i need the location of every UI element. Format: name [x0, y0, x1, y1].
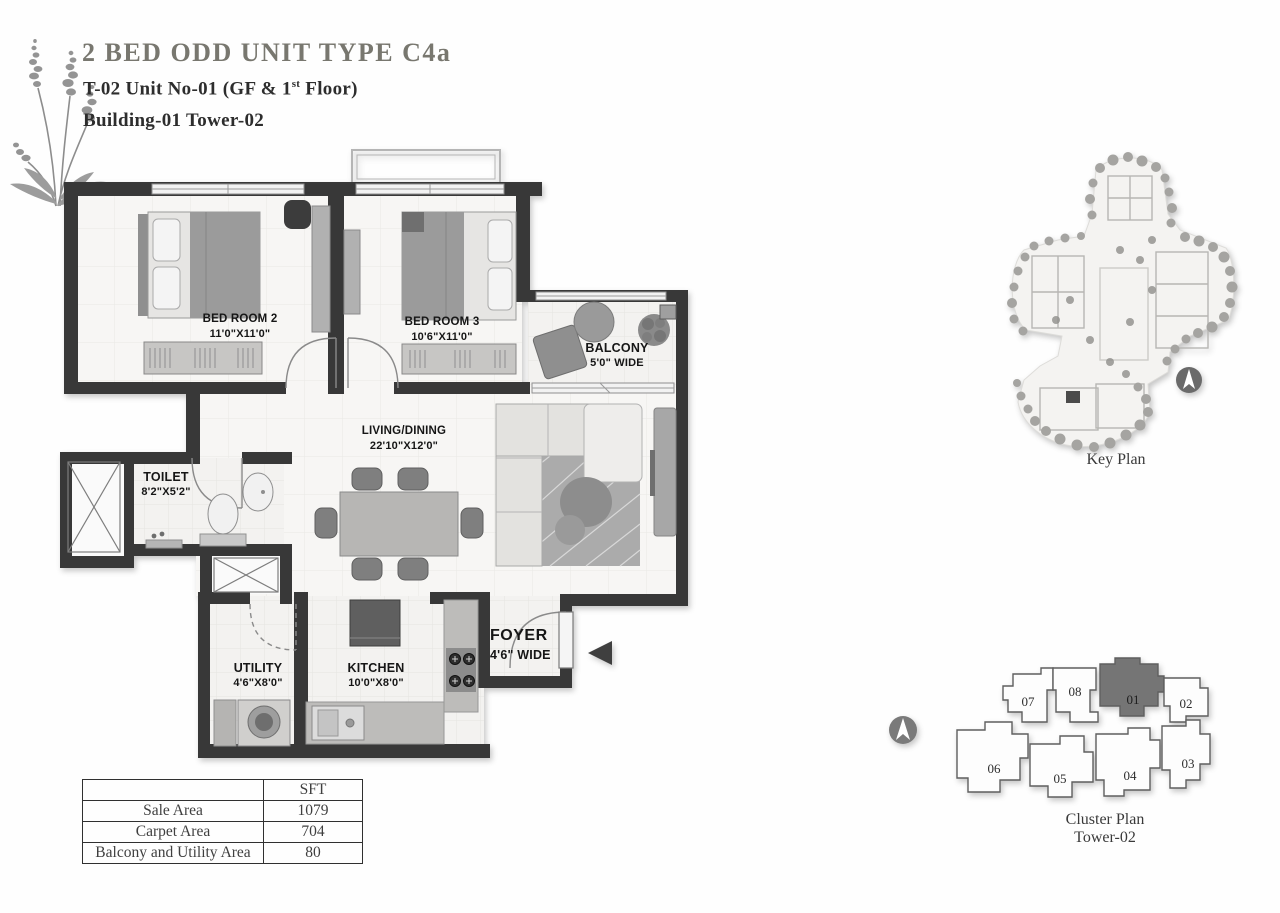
room-dims: 10'6"X11'0" [362, 330, 522, 344]
room-dims: 22'10"X12'0" [324, 439, 484, 453]
room-dims: 5'0" WIDE [556, 356, 678, 370]
room-name: BED ROOM 3 [362, 315, 522, 330]
table-header-row: SFT [83, 780, 363, 801]
room-label-kitchen: KITCHEN 10'0"X8'0" [316, 660, 436, 691]
balcony-utility-area-label: Balcony and Utility Area [83, 843, 264, 864]
room-name: BED ROOM 2 [160, 312, 320, 327]
room-label-living-dining: LIVING/DINING 22'10"X12'0" [324, 424, 484, 453]
cluster-unit-label-08: 08 [1069, 684, 1082, 699]
room-dims: 11'0"X11'0" [160, 327, 320, 341]
cluster-plan-caption-line2: Tower-02 [1025, 829, 1185, 847]
table-row: Balcony and Utility Area 80 [83, 843, 363, 864]
key-plan-caption: Key Plan [1046, 451, 1186, 469]
roof-projection-outline [352, 150, 500, 184]
floor-plan-page: 2 BED ODD UNIT TYPE C4a T-02 Unit No-01 … [0, 0, 1280, 913]
room-dims: 10'0"X8'0" [316, 676, 436, 690]
carpet-area-value: 704 [264, 822, 363, 843]
cluster-unit-label-05: 05 [1054, 771, 1067, 786]
cluster-unit-label-02: 02 [1180, 696, 1193, 711]
sale-area-label: Sale Area [83, 801, 264, 822]
room-name: FOYER [490, 626, 580, 647]
room-name: LIVING/DINING [324, 424, 484, 439]
key-plan-graphic [1007, 152, 1238, 452]
cluster-unit-04 [1096, 728, 1160, 796]
table-row: Carpet Area 704 [83, 822, 363, 843]
room-dims: 8'2"X5'2" [106, 485, 226, 499]
room-label-toilet: TOILET 8'2"X5'2" [106, 469, 226, 500]
room-name: KITCHEN [316, 660, 436, 676]
balcony-utility-area-value: 80 [264, 843, 363, 864]
room-label-utility: UTILITY 4'6"X8'0" [198, 660, 318, 691]
room-name: BALCONY [556, 340, 678, 356]
cluster-unit-label-01: 01 [1127, 692, 1140, 707]
carpet-area-label: Carpet Area [83, 822, 264, 843]
cluster-plan-graphic [957, 658, 1210, 797]
room-name: UTILITY [198, 660, 318, 676]
cluster-unit-01 [1100, 658, 1164, 716]
area-summary-table: SFT Sale Area 1079 Carpet Area 704 Balco… [82, 779, 363, 864]
cluster-unit-label-07: 07 [1022, 694, 1036, 709]
key-plan-north-arrow-icon [1176, 367, 1202, 393]
cluster-unit-label-04: 04 [1124, 768, 1138, 783]
room-name: TOILET [106, 469, 226, 485]
area-unit-header: SFT [264, 780, 363, 801]
room-label-bedroom3: BED ROOM 3 10'6"X11'0" [362, 315, 522, 344]
cluster-plan-caption-line1: Cluster Plan [1025, 811, 1185, 829]
room-label-bedroom2: BED ROOM 2 11'0"X11'0" [160, 312, 320, 341]
cluster-plan-north-arrow-icon [889, 716, 917, 744]
room-dims: 4'6" WIDE [490, 647, 580, 663]
cluster-unit-06 [957, 722, 1028, 792]
cluster-unit-05 [1030, 736, 1093, 797]
room-label-balcony: BALCONY 5'0" WIDE [556, 340, 678, 371]
cluster-plan-caption: Cluster Plan Tower-02 [1025, 811, 1185, 847]
area-label-header [83, 780, 264, 801]
entry-direction-arrow [588, 641, 612, 665]
sale-area-value: 1079 [264, 801, 363, 822]
room-dims: 4'6"X8'0" [198, 676, 318, 690]
cluster-unit-03 [1162, 720, 1210, 788]
cluster-unit-label-03: 03 [1182, 756, 1195, 771]
room-label-foyer: FOYER 4'6" WIDE [490, 626, 580, 663]
table-row: Sale Area 1079 [83, 801, 363, 822]
key-plan-highlighted-unit [1066, 391, 1080, 403]
utility-fixtures [214, 700, 290, 746]
cluster-unit-label-06: 06 [988, 761, 1002, 776]
